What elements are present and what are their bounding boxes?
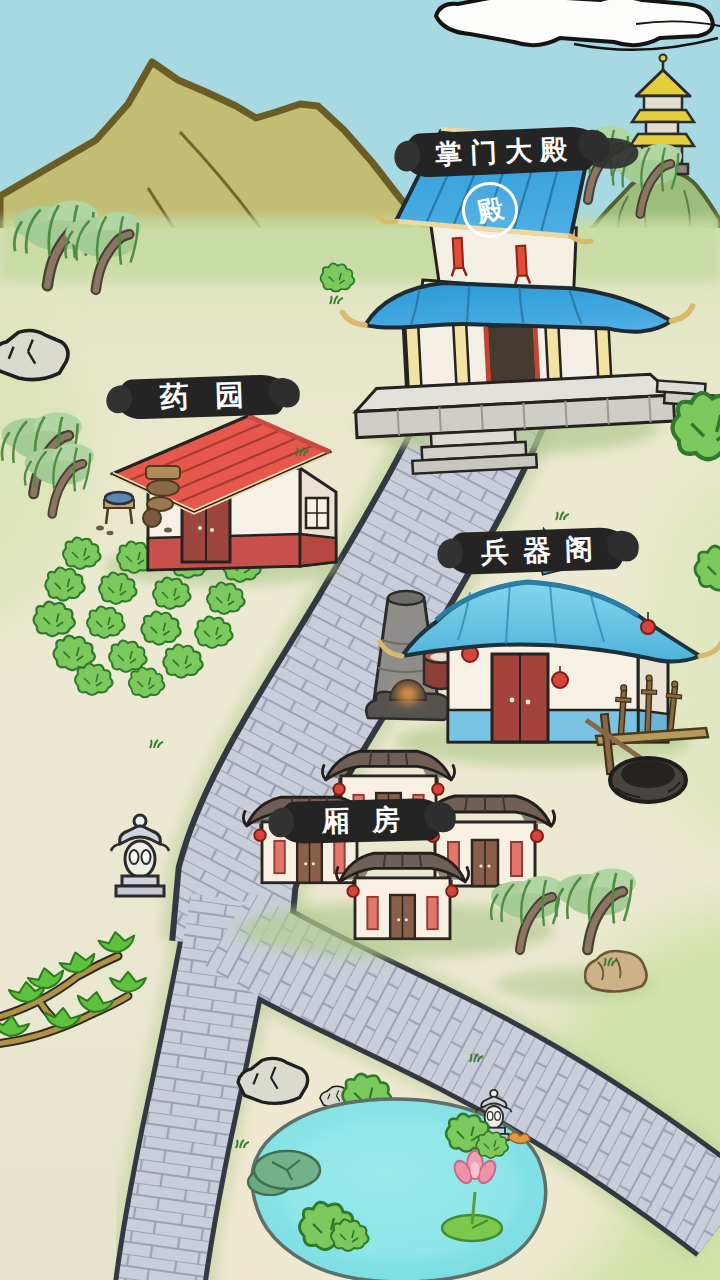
- label-herb-garden[interactable]: 药园: [117, 374, 286, 420]
- roof-badge-text: 殿: [474, 190, 507, 230]
- map-illustration: [0, 0, 720, 1280]
- label-herb-garden-text: 药园: [133, 375, 270, 420]
- label-weapon-pavilion-text: 兵器阁: [466, 530, 607, 573]
- label-main-hall-text: 掌门大殿: [426, 131, 575, 173]
- sect-map-screen: 掌门大殿 殿 药园 兵器阁 厢房: [0, 0, 720, 1280]
- label-wing-rooms-text: 厢房: [300, 800, 423, 841]
- label-weapon-pavilion[interactable]: 兵器阁: [448, 527, 625, 575]
- label-main-hall[interactable]: 掌门大殿: [405, 126, 597, 178]
- label-wing-rooms[interactable]: 厢房: [279, 798, 442, 844]
